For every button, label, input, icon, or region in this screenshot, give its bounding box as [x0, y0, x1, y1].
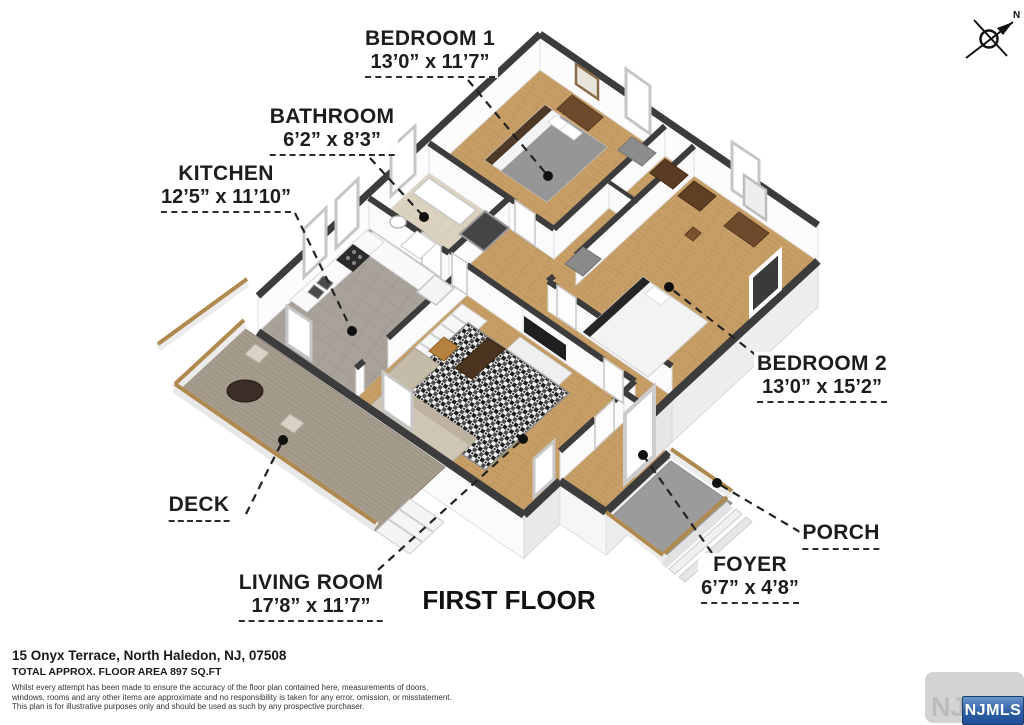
compass-icon: N — [966, 10, 1020, 58]
dashed-underline — [169, 520, 230, 522]
compass-north-label: N — [1013, 10, 1020, 21]
property-address: 15 Onyx Terrace, North Haledon, NJ, 0750… — [12, 648, 452, 663]
dashed-underline — [802, 548, 879, 550]
room-label-bathroom: BATHROOM 6’2” x 8’3” — [267, 105, 398, 156]
dashed-underline — [161, 211, 291, 213]
dashed-underline — [239, 620, 383, 622]
floor-title: FIRST FLOOR — [422, 585, 595, 616]
room-label-living-room: LIVING ROOM 17’8” x 11’7” — [236, 571, 386, 622]
room-label-bedroom1: BEDROOM 1 13’0” x 11’7” — [362, 27, 498, 78]
room-label-bedroom2: BEDROOM 2 13’0” x 15’2” — [754, 352, 890, 403]
room-label-foyer: FOYER 6’7” x 4’8” — [698, 553, 802, 604]
room-label-deck: DECK — [166, 493, 233, 522]
dashed-underline — [365, 76, 495, 78]
total-floor-area: TOTAL APPROX. FLOOR AREA 897 SQ.FT — [12, 666, 452, 678]
floorplan-page: { "title": "FIRST FLOOR", "compass": { "… — [0, 0, 1024, 723]
dashed-underline — [701, 602, 799, 604]
dashed-underline — [757, 401, 887, 403]
footer: 15 Onyx Terrace, North Haledon, NJ, 0750… — [12, 648, 452, 712]
room-label-kitchen: KITCHEN 12’5” x 11’10” — [158, 162, 294, 213]
room-label-porch: PORCH — [799, 521, 882, 550]
dashed-underline — [270, 154, 395, 156]
disclaimer: Whilst every attempt has been made to en… — [12, 683, 452, 712]
njmls-logo-badge: NJMLS — [962, 696, 1024, 725]
deck-table — [227, 380, 263, 402]
